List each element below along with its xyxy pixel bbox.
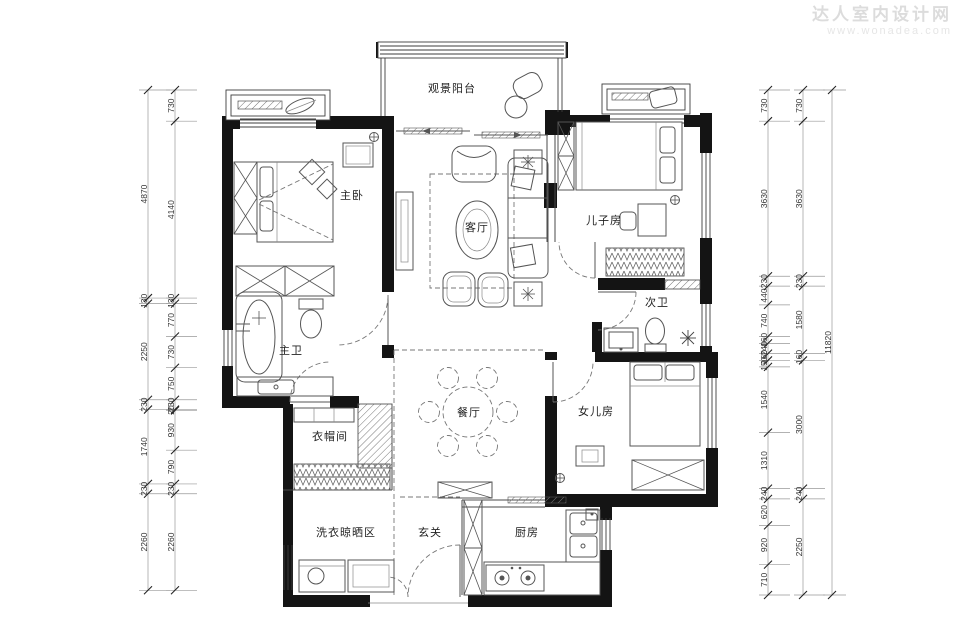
- dimension-label: 240: [794, 486, 804, 500]
- dimension-label: 730: [794, 98, 804, 112]
- dimension-label: 440: [759, 288, 769, 302]
- dimension-label: 20: [166, 405, 176, 415]
- dimension-total-label: 11820: [823, 331, 833, 354]
- daughters-room-door: [553, 362, 593, 402]
- floor-plan-page: 达人室内设计网 www.wonadea.com: [0, 0, 960, 640]
- dimension-label: 730: [759, 98, 769, 112]
- room-label-kitchen: 厨房: [515, 526, 539, 539]
- room-label-balcony: 观景阳台: [428, 81, 476, 95]
- furniture: [234, 70, 704, 595]
- room-label-sons-room: 儿子房: [586, 214, 622, 227]
- room-label-second-bath: 次卫: [645, 295, 669, 309]
- room-label-master-bedroom: 主卧: [340, 189, 364, 202]
- laundry-furniture: [299, 560, 394, 592]
- room-label-living-room: 客厅: [465, 220, 489, 234]
- room-label-foyer: 玄关: [418, 525, 442, 539]
- dimension-label: 3000: [794, 415, 804, 434]
- dimension-label: 160: [794, 350, 804, 364]
- room-label-laundry: 洗衣晾晒区: [316, 525, 376, 539]
- dimension-label: 150: [759, 356, 769, 370]
- kitchen-sliding-door: [508, 497, 566, 503]
- watermark-site-name: 达人室内设计网: [812, 4, 952, 24]
- kitchen-fixtures: [484, 509, 600, 595]
- watermark: 达人室内设计网 www.wonadea.com: [812, 4, 952, 37]
- dimension-label: 230: [166, 481, 176, 495]
- bath-vent-window: [665, 280, 700, 289]
- dimension-label: 1310: [759, 451, 769, 470]
- balcony-furniture: [505, 70, 545, 118]
- balcony-sliding-door: [396, 128, 548, 138]
- sons-room-door: [559, 242, 595, 278]
- dimension-label: 4870: [139, 184, 149, 203]
- dimension-label: 790: [166, 460, 176, 474]
- watermark-url: www.wonadea.com: [826, 25, 952, 37]
- dimension-label: 730: [166, 345, 176, 359]
- entry-door: [368, 545, 468, 603]
- dimension-label: 230: [759, 274, 769, 288]
- dimension-label: 620: [759, 505, 769, 519]
- dimension-label: 770: [166, 313, 176, 327]
- dimension-label: 3630: [794, 189, 804, 208]
- daughters-room-furniture: [555, 362, 704, 490]
- room-label-dining-room: 餐厅: [457, 405, 481, 419]
- room-label-closet: 衣帽间: [312, 429, 348, 443]
- second-bath-fixtures: [604, 318, 696, 352]
- dimension-label: 230: [139, 397, 149, 411]
- dimension-label: 130: [139, 293, 149, 307]
- floor-plan-drawing: 达人室内设计网 www.wonadea.com: [0, 0, 960, 640]
- sons-bay-window: [602, 84, 690, 114]
- dimension-label: 2260: [139, 532, 149, 551]
- room-label-master-bath: 主卫: [279, 344, 303, 357]
- dimension-chains: 4870130225023017402302260730414013077073…: [139, 86, 846, 599]
- closet-furniture: [294, 404, 392, 490]
- master-bath-fixtures: [236, 292, 333, 396]
- dimension-label: 130: [166, 293, 176, 307]
- dimension-label: 1740: [139, 437, 149, 456]
- dimension-label: 1540: [759, 390, 769, 409]
- second-bath-door: [598, 292, 636, 330]
- dimension-label: 740: [759, 313, 769, 327]
- dimension-label: 2250: [794, 537, 804, 556]
- dimension-label: 4140: [166, 200, 176, 219]
- balcony-window: [378, 42, 566, 116]
- sons-room-furniture: [558, 122, 684, 276]
- dimension-label: 920: [759, 538, 769, 552]
- dimension-label: 230: [794, 274, 804, 288]
- dimension-label: 230: [139, 481, 149, 495]
- dimension-label: 2260: [166, 532, 176, 551]
- dimension-label: 1580: [794, 310, 804, 329]
- dimension-label: 240: [759, 486, 769, 500]
- dimension-label: 730: [166, 98, 176, 112]
- dimension-label: 710: [759, 572, 769, 586]
- master-bedroom-door: [338, 295, 388, 345]
- dimension-label: 3630: [759, 189, 769, 208]
- dimension-label: 750: [166, 376, 176, 390]
- master-bay-window: [226, 90, 330, 120]
- dimension-label: 930: [166, 423, 176, 437]
- dimension-label: 2250: [139, 342, 149, 361]
- room-label-daughters-room: 女儿房: [578, 404, 614, 418]
- master-bedroom-furniture: [234, 132, 379, 296]
